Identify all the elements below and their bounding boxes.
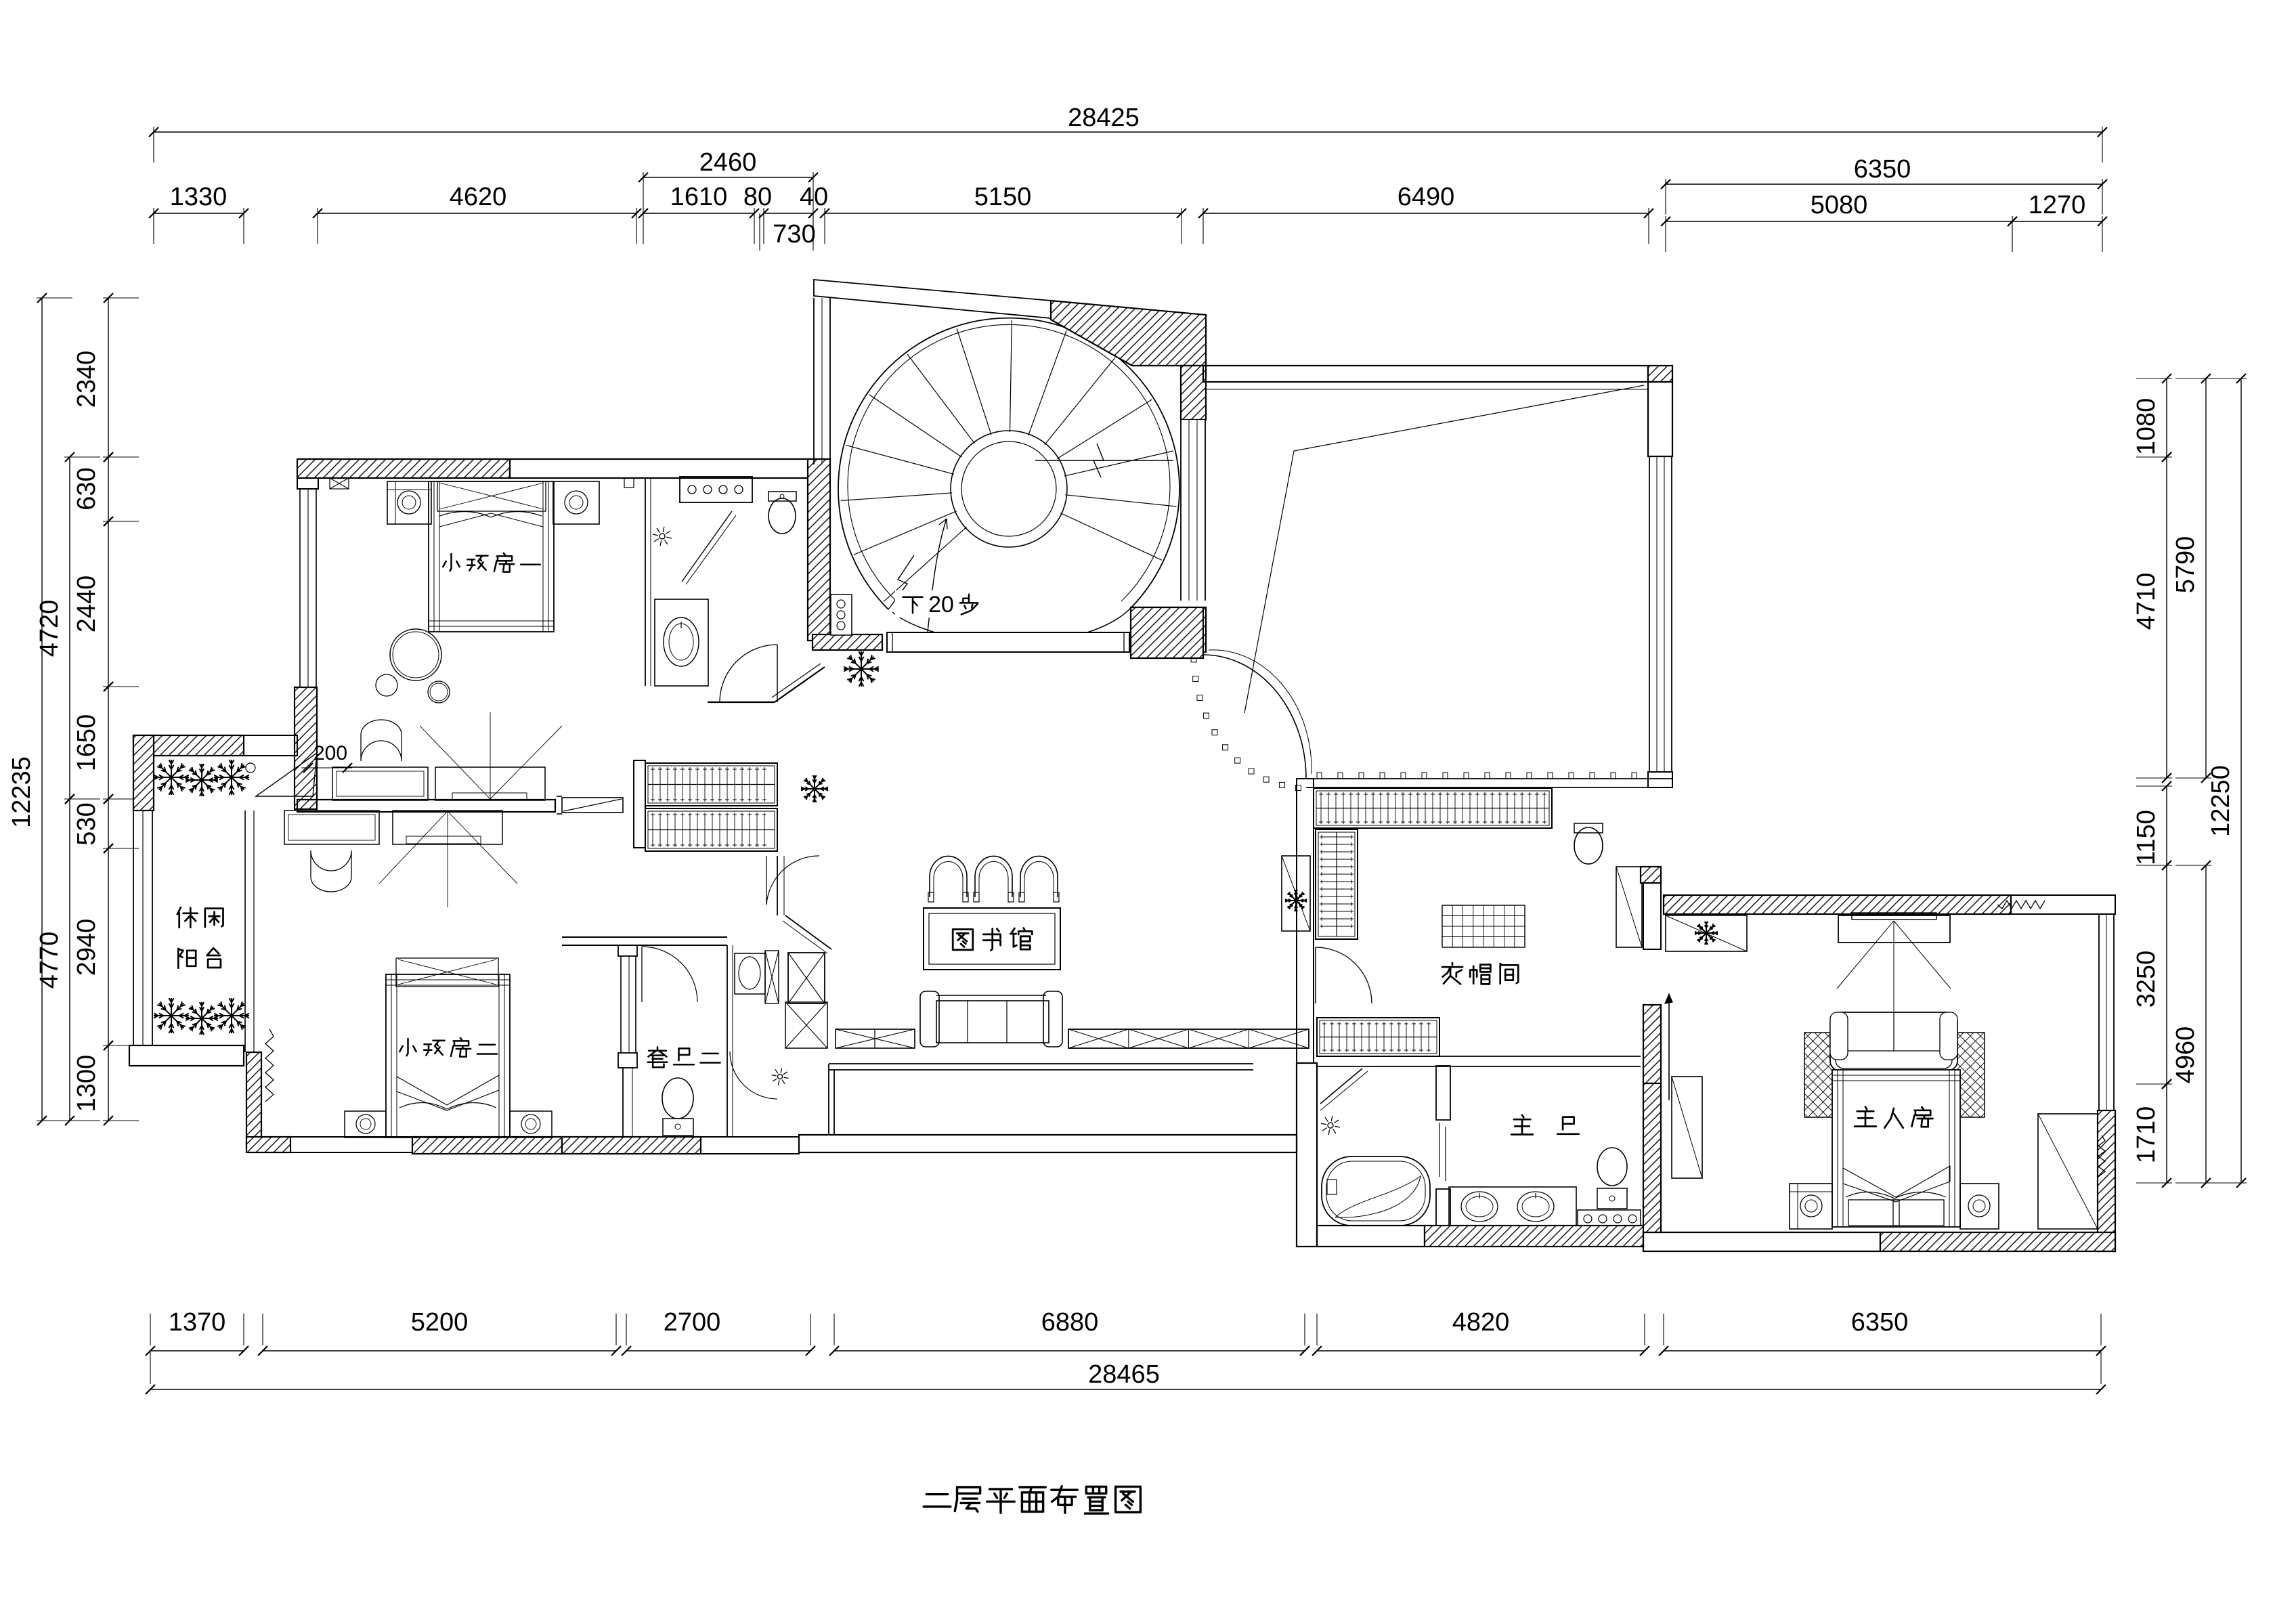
svg-text:2460: 2460 xyxy=(699,148,757,177)
svg-text:4620: 4620 xyxy=(450,183,507,211)
svg-text:1270: 1270 xyxy=(2029,191,2086,219)
svg-text:200: 200 xyxy=(313,742,347,764)
svg-text:1650: 1650 xyxy=(72,714,101,772)
svg-text:530: 530 xyxy=(72,802,101,845)
svg-text:40: 40 xyxy=(800,183,828,211)
svg-text:12235: 12235 xyxy=(7,756,36,828)
svg-text:28425: 28425 xyxy=(1068,104,1140,132)
svg-text:6490: 6490 xyxy=(1398,183,1455,211)
svg-text:12250: 12250 xyxy=(2207,765,2235,837)
svg-text:630: 630 xyxy=(72,467,101,510)
svg-text:6880: 6880 xyxy=(1041,1308,1099,1337)
svg-text:1150: 1150 xyxy=(2132,810,2161,865)
svg-text:730: 730 xyxy=(773,220,815,248)
svg-text:5080: 5080 xyxy=(1811,191,1868,219)
svg-text:5150: 5150 xyxy=(974,183,1032,211)
svg-text:80: 80 xyxy=(743,183,772,211)
svg-text:6350: 6350 xyxy=(1851,1308,1909,1337)
svg-text:4720: 4720 xyxy=(35,600,64,657)
svg-text:1330: 1330 xyxy=(170,183,228,211)
svg-text:4820: 4820 xyxy=(1452,1308,1510,1337)
svg-text:1300: 1300 xyxy=(72,1055,101,1112)
svg-text:1710: 1710 xyxy=(2132,1106,2161,1164)
svg-text:5200: 5200 xyxy=(411,1308,469,1337)
svg-text:20: 20 xyxy=(928,592,954,618)
svg-text:4960: 4960 xyxy=(2171,1026,2200,1084)
svg-text:2940: 2940 xyxy=(72,919,101,976)
svg-text:4710: 4710 xyxy=(2132,573,2161,630)
svg-text:1080: 1080 xyxy=(2132,398,2161,456)
svg-text:28465: 28465 xyxy=(1088,1360,1160,1389)
svg-text:2340: 2340 xyxy=(72,351,101,408)
svg-text:5790: 5790 xyxy=(2171,536,2200,594)
svg-text:1610: 1610 xyxy=(670,183,728,211)
svg-text:2440: 2440 xyxy=(72,576,101,633)
svg-text:1370: 1370 xyxy=(169,1308,226,1337)
svg-text:3250: 3250 xyxy=(2132,951,2161,1008)
svg-text:6350: 6350 xyxy=(1854,155,1911,183)
svg-text:2700: 2700 xyxy=(664,1308,721,1337)
svg-text:4770: 4770 xyxy=(35,932,64,989)
